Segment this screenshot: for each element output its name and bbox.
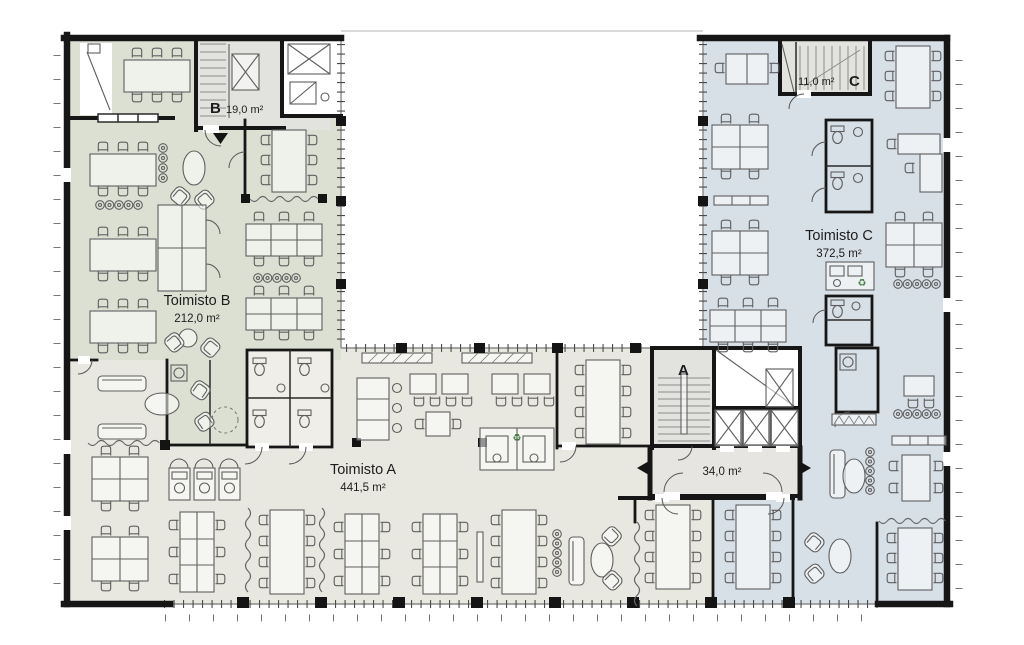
elevator bbox=[771, 410, 798, 446]
elevator bbox=[715, 410, 742, 446]
recycle-icon: ♻ bbox=[858, 278, 867, 289]
meeting-table bbox=[124, 48, 190, 102]
sofa bbox=[98, 424, 146, 439]
sofa bbox=[98, 376, 146, 391]
room-area-toimisto-b: 212,0 m² bbox=[174, 313, 220, 325]
desk-cluster bbox=[246, 212, 322, 266]
coffee-table bbox=[843, 459, 865, 493]
lockers bbox=[892, 436, 946, 445]
bench bbox=[462, 353, 532, 363]
elevator bbox=[743, 410, 770, 446]
elevator-b bbox=[232, 54, 259, 90]
bench bbox=[362, 353, 432, 363]
stairwell-c-label: C bbox=[849, 73, 860, 90]
coat-hooks bbox=[832, 414, 876, 425]
kitchen-counter: ♻ bbox=[480, 428, 554, 470]
meeting-table bbox=[90, 299, 156, 353]
elevator-shaft bbox=[766, 369, 793, 407]
desk-cluster bbox=[246, 286, 322, 340]
room-area-toimisto-c: 372,5 m² bbox=[816, 248, 862, 260]
recycle-icon: ♻ bbox=[513, 433, 522, 444]
room-label-toimisto-c: Toimisto C bbox=[805, 228, 873, 244]
meeting-table bbox=[90, 142, 156, 196]
room-area-toimisto-a: 441,5 m² bbox=[340, 482, 386, 494]
room-label-toimisto-b: Toimisto B bbox=[164, 293, 231, 309]
coffee-table bbox=[145, 393, 179, 415]
oval-table bbox=[183, 151, 205, 185]
stairwell-b-label: B bbox=[210, 100, 221, 117]
coffee-table bbox=[829, 539, 851, 573]
room-label-toimisto-a: Toimisto A bbox=[330, 462, 396, 478]
lockers bbox=[714, 196, 768, 205]
stairwell-c-area: 11,0 m² bbox=[798, 76, 835, 88]
floor-plan: ♻ bbox=[0, 0, 1024, 645]
shelf-divider bbox=[477, 532, 483, 582]
meeting-table bbox=[90, 227, 156, 281]
stairwell-a-label: A bbox=[678, 362, 689, 379]
stairwell-b-area: 19,0 m² bbox=[226, 104, 264, 116]
sofa bbox=[569, 537, 584, 585]
desk-cluster bbox=[710, 298, 786, 352]
lobby-area: 34,0 m² bbox=[703, 466, 742, 478]
